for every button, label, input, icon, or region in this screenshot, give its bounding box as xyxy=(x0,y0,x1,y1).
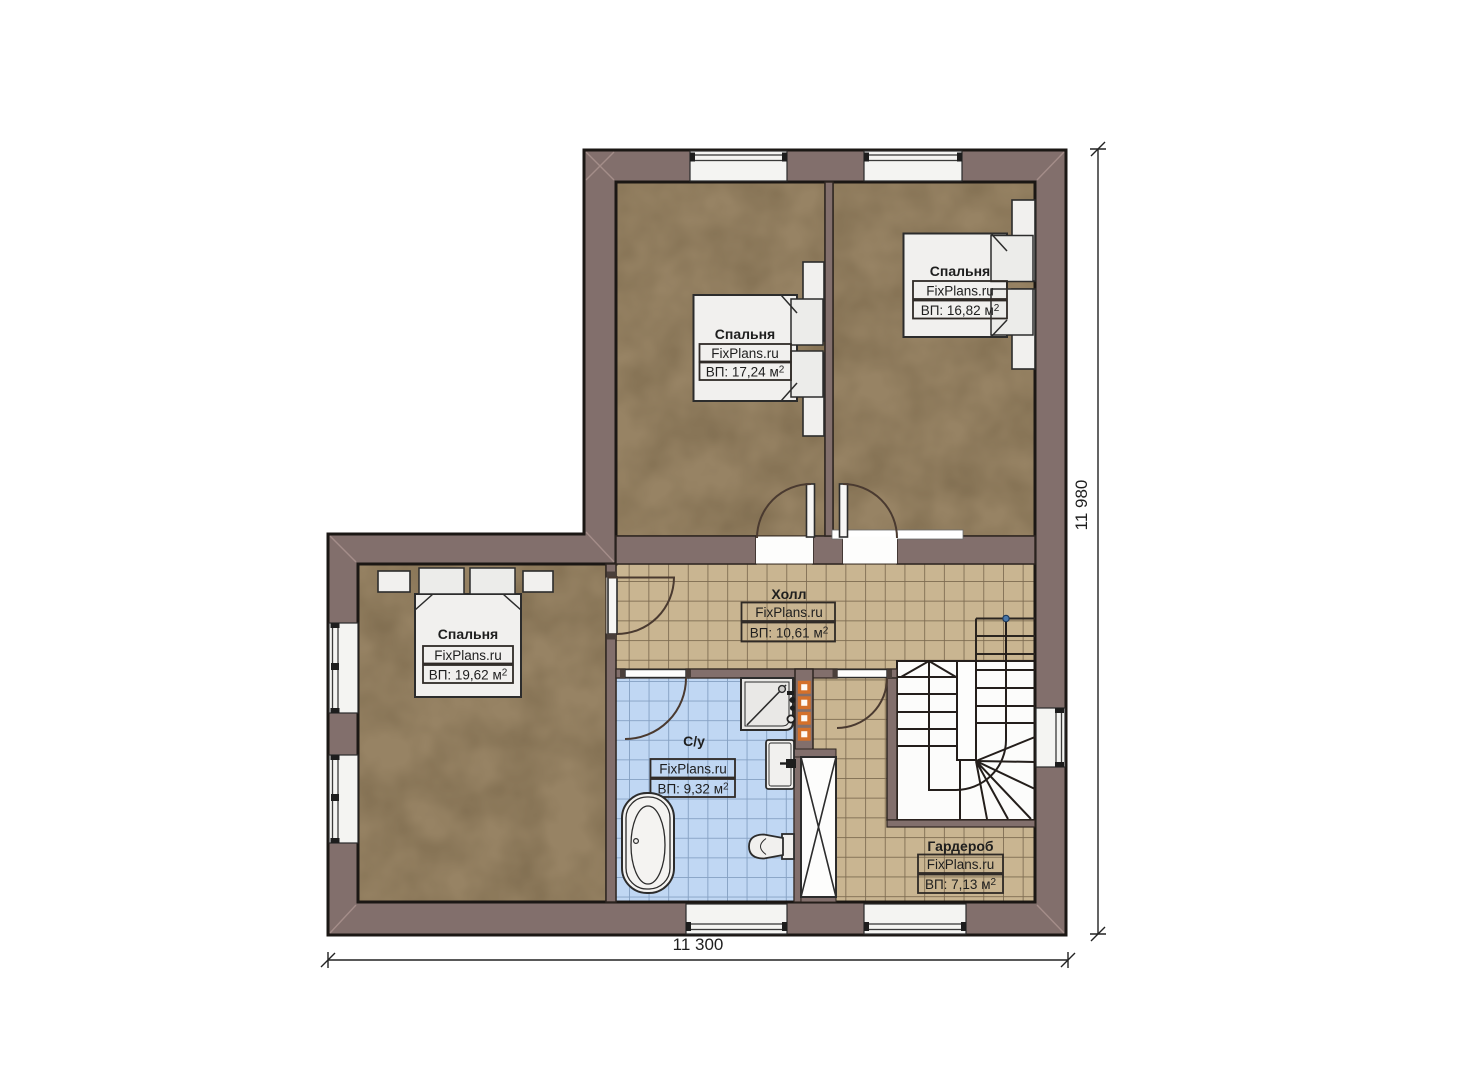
svg-text:FixPlans.ru: FixPlans.ru xyxy=(926,284,994,299)
svg-text:FixPlans.ru: FixPlans.ru xyxy=(434,648,502,663)
svg-text:Спальня: Спальня xyxy=(930,263,990,279)
svg-text:Гардероб: Гардероб xyxy=(927,838,994,854)
svg-text:Холл: Холл xyxy=(771,586,806,602)
svg-text:FixPlans.ru: FixPlans.ru xyxy=(659,762,727,777)
svg-text:FixPlans.ru: FixPlans.ru xyxy=(711,346,779,361)
svg-text:Спальня: Спальня xyxy=(715,326,775,342)
svg-text:ВП: 9,32 м2: ВП: 9,32 м2 xyxy=(657,782,729,797)
svg-text:ВП: 10,61 м2: ВП: 10,61 м2 xyxy=(750,626,829,641)
svg-text:С/у: С/у xyxy=(683,733,705,749)
svg-text:FixPlans.ru: FixPlans.ru xyxy=(755,605,823,620)
svg-text:ВП: 19,62 м2: ВП: 19,62 м2 xyxy=(429,668,508,683)
svg-text:11 980: 11 980 xyxy=(1072,480,1091,531)
svg-text:11 300: 11 300 xyxy=(673,935,724,954)
svg-text:Спальня: Спальня xyxy=(438,626,498,642)
svg-text:ВП: 16,82 м2: ВП: 16,82 м2 xyxy=(921,303,1000,318)
svg-text:FixPlans.ru: FixPlans.ru xyxy=(927,857,995,872)
svg-text:ВП: 17,24 м2: ВП: 17,24 м2 xyxy=(706,365,785,380)
svg-text:ВП: 7,13 м2: ВП: 7,13 м2 xyxy=(925,877,997,892)
